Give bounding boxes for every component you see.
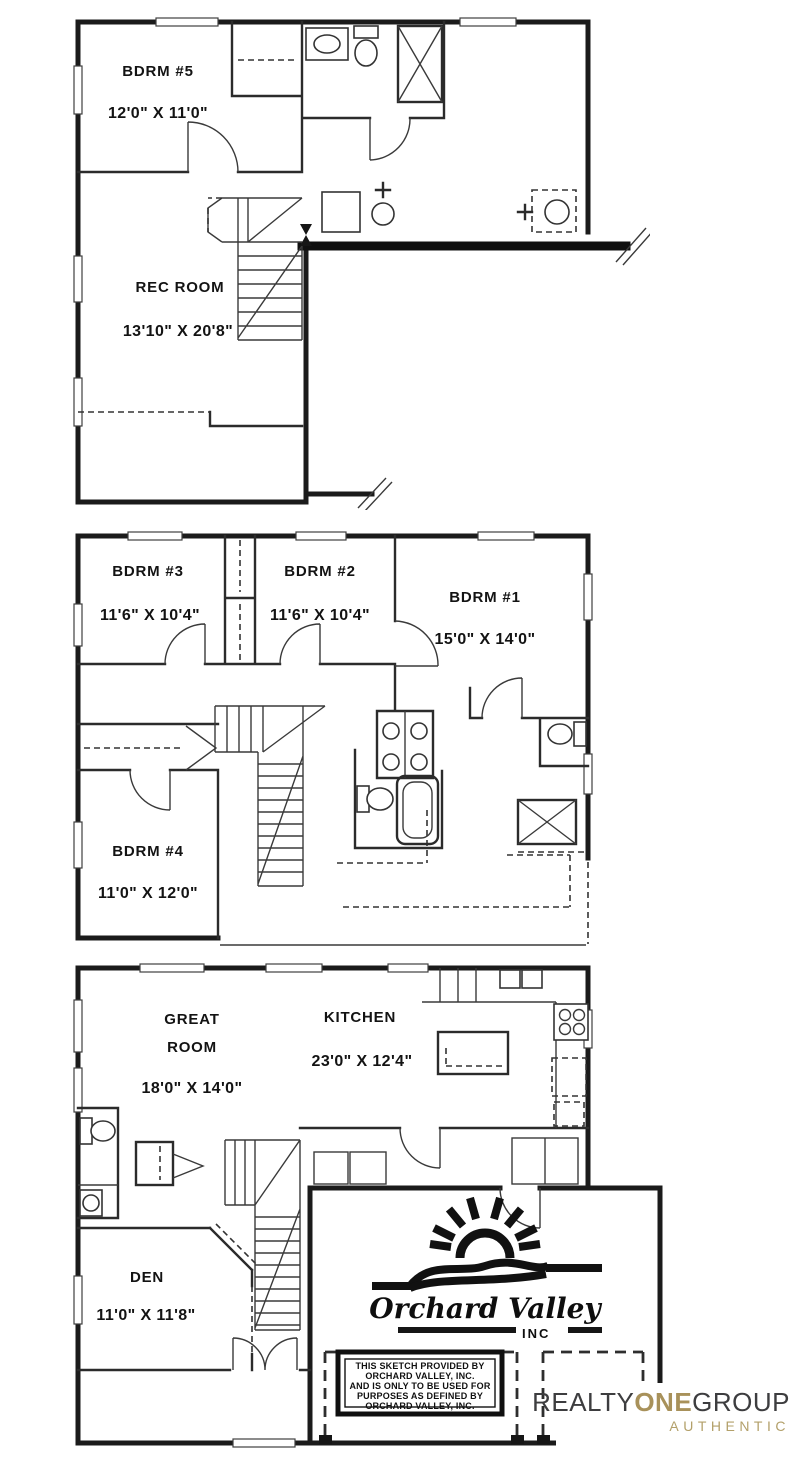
brokerage-word-group: GROUP <box>692 1387 790 1417</box>
break-line-icon <box>358 228 650 510</box>
sun-rays-icon <box>430 1198 540 1258</box>
disclaimer-line: ORCHARD VALLEY, INC. <box>365 1401 474 1411</box>
exterior-walls <box>78 22 588 502</box>
range-icon <box>554 1004 588 1040</box>
toilet-icon <box>354 26 378 66</box>
stairs-icon <box>215 706 325 886</box>
room-dims-bdrm5: 12'0" X 11'0" <box>108 105 208 122</box>
bathtub-icon <box>397 776 438 844</box>
toilet-icon <box>80 1118 115 1144</box>
water-heater-icon <box>372 183 394 225</box>
logo-name: Orchard Valley <box>369 1292 602 1325</box>
room-dims-recroom: 13'10" X 20'8" <box>123 323 233 340</box>
refrigerator-icon <box>552 1058 586 1096</box>
brokerage-word-realty: REALTY <box>532 1387 634 1417</box>
door-arcs <box>130 621 522 810</box>
stairs-icon <box>225 1140 300 1330</box>
disclaimer-line: ORCHARD VALLEY, INC. <box>365 1371 474 1381</box>
sink-icon <box>306 28 348 60</box>
brokerage-word-one: ONE <box>634 1387 692 1417</box>
logo-suffix: INC <box>522 1326 550 1341</box>
floor-plan-basement: BDRM #5 12'0" X 11'0" REC ROOM 13'10" X … <box>70 8 650 510</box>
sink-icon <box>80 1190 102 1216</box>
room-label-bdrm5: BDRM #5 <box>122 63 193 80</box>
disclaimer-line: THIS SKETCH PROVIDED BY <box>355 1361 484 1371</box>
brokerage-watermark: REALTYONEGROUP AUTHENTIC <box>556 1383 800 1457</box>
mudroom-bench <box>314 1138 578 1184</box>
windows <box>74 964 592 1447</box>
room-label-kitchen: KITCHEN <box>324 1009 396 1026</box>
room-dims-greatroom: 18'0" X 14'0" <box>142 1080 243 1097</box>
kitchen-counters <box>422 968 556 1128</box>
kitchen-island <box>438 1032 508 1074</box>
floor-plan-main: Orchard Valley INC THIS SKETCH PROVIDED … <box>70 956 670 1450</box>
room-label-den: DEN <box>130 1269 164 1286</box>
toilet-icon <box>357 786 393 812</box>
door-arcs <box>173 1128 540 1370</box>
coat-closet <box>136 1142 173 1185</box>
pantry <box>554 1102 584 1126</box>
floorplan-sheet: BDRM #5 12'0" X 11'0" REC ROOM 13'10" X … <box>0 0 800 1457</box>
room-dims-bdrm3: 11'6" X 10'4" <box>100 607 200 624</box>
stairs-icon <box>208 198 302 340</box>
shower-icon <box>518 800 576 844</box>
room-label-greatroom-1: GREAT <box>164 1011 219 1028</box>
toilet-icon-master <box>548 722 586 746</box>
disclaimer-line: AND IS ONLY TO BE USED FOR <box>349 1381 490 1391</box>
room-label-greatroom-2: ROOM <box>167 1039 217 1056</box>
windows <box>74 532 592 868</box>
room-label-bdrm1: BDRM #1 <box>449 589 520 606</box>
room-label-bdrm3: BDRM #3 <box>112 563 183 580</box>
room-dims-bdrm2: 11'6" X 10'4" <box>270 607 370 624</box>
laundry-tub-icon <box>518 190 576 232</box>
room-label-bdrm2: BDRM #2 <box>284 563 355 580</box>
room-dims-bdrm1: 15'0" X 14'0" <box>435 631 536 648</box>
room-label-bdrm4: BDRM #4 <box>112 843 183 860</box>
hills-icon <box>372 1263 602 1288</box>
shower-icon <box>398 26 442 102</box>
door-arcs <box>188 118 410 172</box>
room-dims-den: 11'0" X 11'8" <box>96 1307 195 1324</box>
brokerage-logotype: REALTYONEGROUP <box>532 1389 790 1416</box>
room-dims-kitchen: 23'0" X 12'4" <box>312 1053 413 1070</box>
kitchen-sink-icon <box>500 970 542 988</box>
disclaimer-line: PURPOSES AS DEFINED BY <box>357 1391 483 1401</box>
orchard-valley-logo: Orchard Valley INC <box>369 1198 602 1341</box>
floor-plan-upper: BDRM #3 11'6" X 10'4" BDRM #2 11'6" X 10… <box>70 526 595 950</box>
disclaimer-box: THIS SKETCH PROVIDED BY ORCHARD VALLEY, … <box>338 1352 502 1414</box>
furnace-icon <box>322 192 360 232</box>
brokerage-tagline: AUTHENTIC <box>669 1418 790 1434</box>
room-label-recroom: REC ROOM <box>136 279 225 296</box>
room-dims-bdrm4: 11'0" X 12'0" <box>98 885 198 902</box>
